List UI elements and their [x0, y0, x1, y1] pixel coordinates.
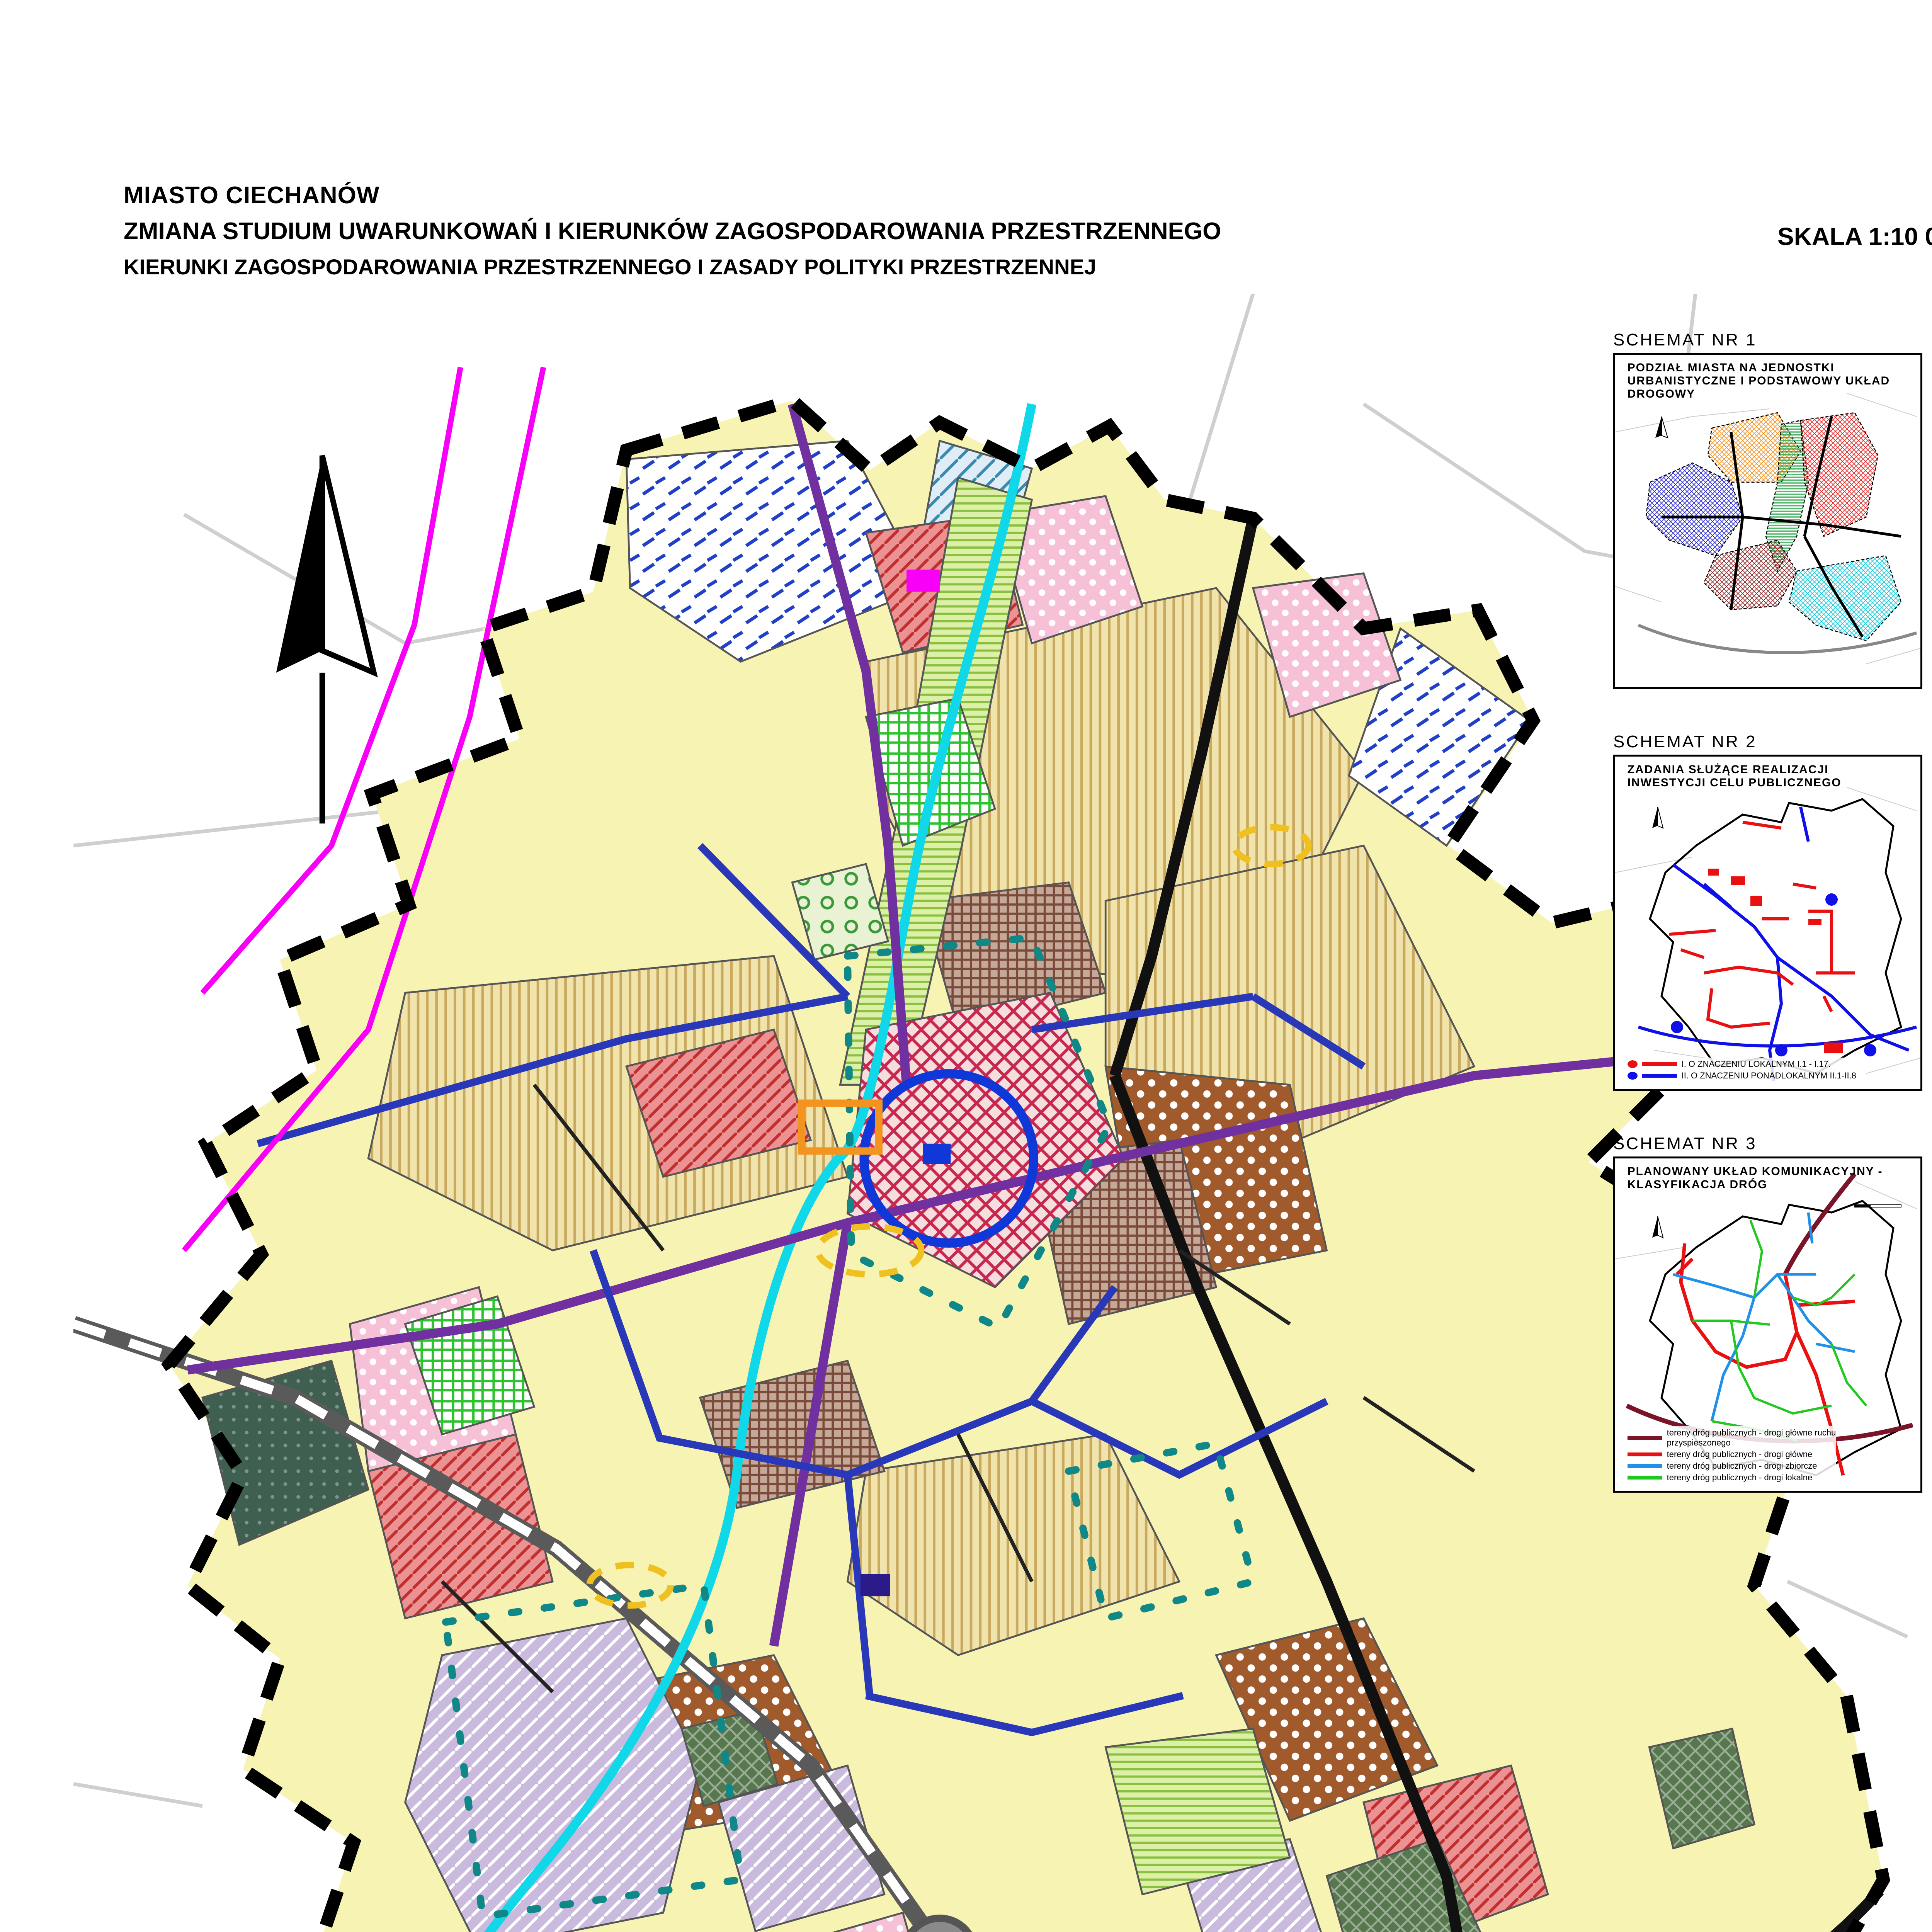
- legend-text: tereny dróg publicznych - drogi zbiorcze: [1667, 1461, 1817, 1471]
- legend-text: tereny dróg publicznych - drogi główne: [1667, 1449, 1813, 1459]
- schemat-2: SCHEMAT NR 2 ZADANIA SŁUŻĄCE REALIZACJI …: [1613, 732, 1922, 1091]
- legend-line: [1642, 1074, 1677, 1078]
- legend-text: tereny dróg publicznych - drogi główne r…: [1667, 1428, 1836, 1448]
- schemat-legend-row: I. O ZNACZENIU LOKALNYM I.1 - I.17.: [1628, 1059, 1856, 1069]
- schemat-2-box: ZADANIA SŁUŻĄCE REALIZACJI INWESTYCJI CE…: [1613, 755, 1922, 1091]
- schemat-legend-row: tereny dróg publicznych - drogi zbiorcze: [1628, 1461, 1836, 1471]
- title-line-3: KIERUNKI ZAGOSPODAROWANIA PRZESTRZENNEGO…: [124, 254, 1221, 279]
- schemat-3-title: PLANOWANY UKŁAD KOMUNIKACYJNY - KLASYFIK…: [1628, 1165, 1908, 1191]
- legend-line: [1642, 1062, 1677, 1066]
- schemat-1-heading: SCHEMAT NR 1: [1613, 330, 1922, 350]
- schemat-1-title: PODZIAŁ MIASTA NA JEDNOSTKI URBANISTYCZN…: [1628, 361, 1908, 401]
- schemat-2-legend: I. O ZNACZENIU LOKALNYM I.1 - I.17. II. …: [1628, 1058, 1856, 1082]
- schemat-3-box: PLANOWANY UKŁAD KOMUNIKACYJNY - KLASYFIK…: [1613, 1156, 1922, 1493]
- legend-text: II. O ZNACZENIU PONADLOKALNYM II.1-II.8: [1682, 1071, 1856, 1081]
- legend-line: [1628, 1476, 1662, 1480]
- schemat-1-labels: [1615, 355, 1920, 687]
- legend-line: [1628, 1464, 1662, 1468]
- map-header: MIASTO CIECHANÓW ZMIANA STUDIUM UWARUNKO…: [124, 182, 1221, 279]
- scale-label: SKALA 1:10 000: [1777, 222, 1932, 251]
- schemat-legend-row: tereny dróg publicznych - drogi główne: [1628, 1449, 1836, 1459]
- legend-dot: [1628, 1072, 1638, 1080]
- schemat-legend-row: II. O ZNACZENIU PONADLOKALNYM II.1-II.8: [1628, 1071, 1856, 1081]
- title-line-1: MIASTO CIECHANÓW: [124, 182, 1221, 209]
- schemat-3-heading: SCHEMAT NR 3: [1613, 1134, 1922, 1153]
- legend-line: [1628, 1436, 1662, 1440]
- legend-line: [1628, 1452, 1662, 1456]
- schemat-2-heading: SCHEMAT NR 2: [1613, 732, 1922, 752]
- schemat-3-legend: tereny dróg publicznych - drogi główne r…: [1628, 1426, 1836, 1484]
- schemat-legend-row: tereny dróg publicznych - drogi główne r…: [1628, 1428, 1836, 1448]
- legend-text: I. O ZNACZENIU LOKALNYM I.1 - I.17.: [1682, 1059, 1831, 1069]
- schemat-3: SCHEMAT NR 3 PLANOWANY UKŁAD KOMUNIKACYJ…: [1613, 1134, 1922, 1493]
- schemat-1-box: PODZIAŁ MIASTA NA JEDNOSTKI URBANISTYCZN…: [1613, 353, 1922, 689]
- schemat-1: SCHEMAT NR 1 PODZIAŁ MIASTA NA JEDNOSTKI…: [1613, 330, 1922, 689]
- legend-dot: [1628, 1060, 1638, 1068]
- title-line-2: ZMIANA STUDIUM UWARUNKOWAŃ I KIERUNKÓW Z…: [124, 218, 1221, 245]
- schemat-2-title: ZADANIA SŁUŻĄCE REALIZACJI INWESTYCJI CE…: [1628, 763, 1908, 789]
- schemat-legend-row: tereny dróg publicznych - drogi lokalne: [1628, 1473, 1836, 1483]
- legend-text: tereny dróg publicznych - drogi lokalne: [1667, 1473, 1813, 1483]
- sheet: MIASTO CIECHANÓW ZMIANA STUDIUM UWARUNKO…: [0, 0, 1932, 1932]
- schemat-2-labels: [1615, 757, 1920, 1089]
